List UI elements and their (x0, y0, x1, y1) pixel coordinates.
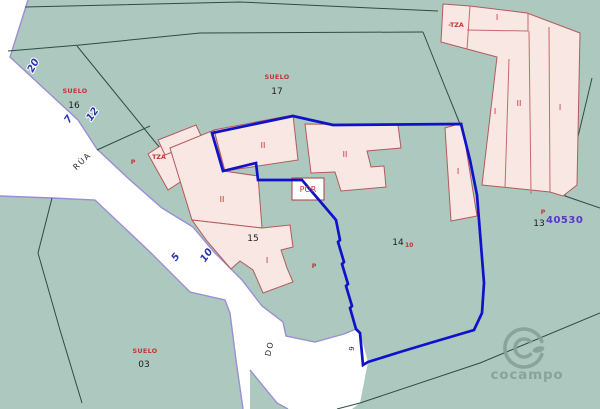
marker-p-center: P (312, 263, 317, 270)
parcel-03-number: 03 (138, 360, 149, 370)
floors-I-lower: I (266, 256, 268, 265)
parcel-13-marker: P (541, 209, 546, 216)
floors-II-complex: II (517, 99, 522, 108)
floors-II-right: II (343, 150, 348, 159)
parcel-14-subnumber: 10 (405, 242, 413, 249)
parcel-16-suelo-label: SUELO (63, 87, 88, 95)
floors-I-narrow: I (457, 167, 459, 176)
parcel-17-suelo-label: SUELO (265, 73, 290, 81)
terrace-label-topright: -TZA (448, 22, 464, 29)
porch-label: POR (300, 185, 317, 194)
parcel-16-number: 16 (68, 101, 80, 111)
parcel-14-number: 14 (392, 238, 404, 248)
cocampo-wordmark: cocampo (491, 367, 564, 383)
cadastral-reference: 40530 (546, 215, 583, 226)
floors-II-central-main: II (220, 195, 225, 204)
parcel-13-number: 13 (533, 219, 544, 229)
cadastral-map[interactable]: SUELO 16 SUELO 17 SUELO 03 15 14 10 13 P… (0, 0, 600, 409)
floors-I-complex-right: I (559, 103, 561, 112)
terrace-label-left: TZA (152, 154, 166, 161)
parcel-15-number: 15 (247, 234, 258, 244)
floors-I-complex-left: I (494, 107, 496, 116)
floors-I-complex-top: I (496, 13, 498, 22)
parcel-03-suelo-label: SUELO (133, 347, 158, 355)
marker-p-left: P (131, 159, 136, 166)
parcel-17-number: 17 (271, 87, 282, 97)
floors-II-central-upper: II (261, 141, 266, 150)
